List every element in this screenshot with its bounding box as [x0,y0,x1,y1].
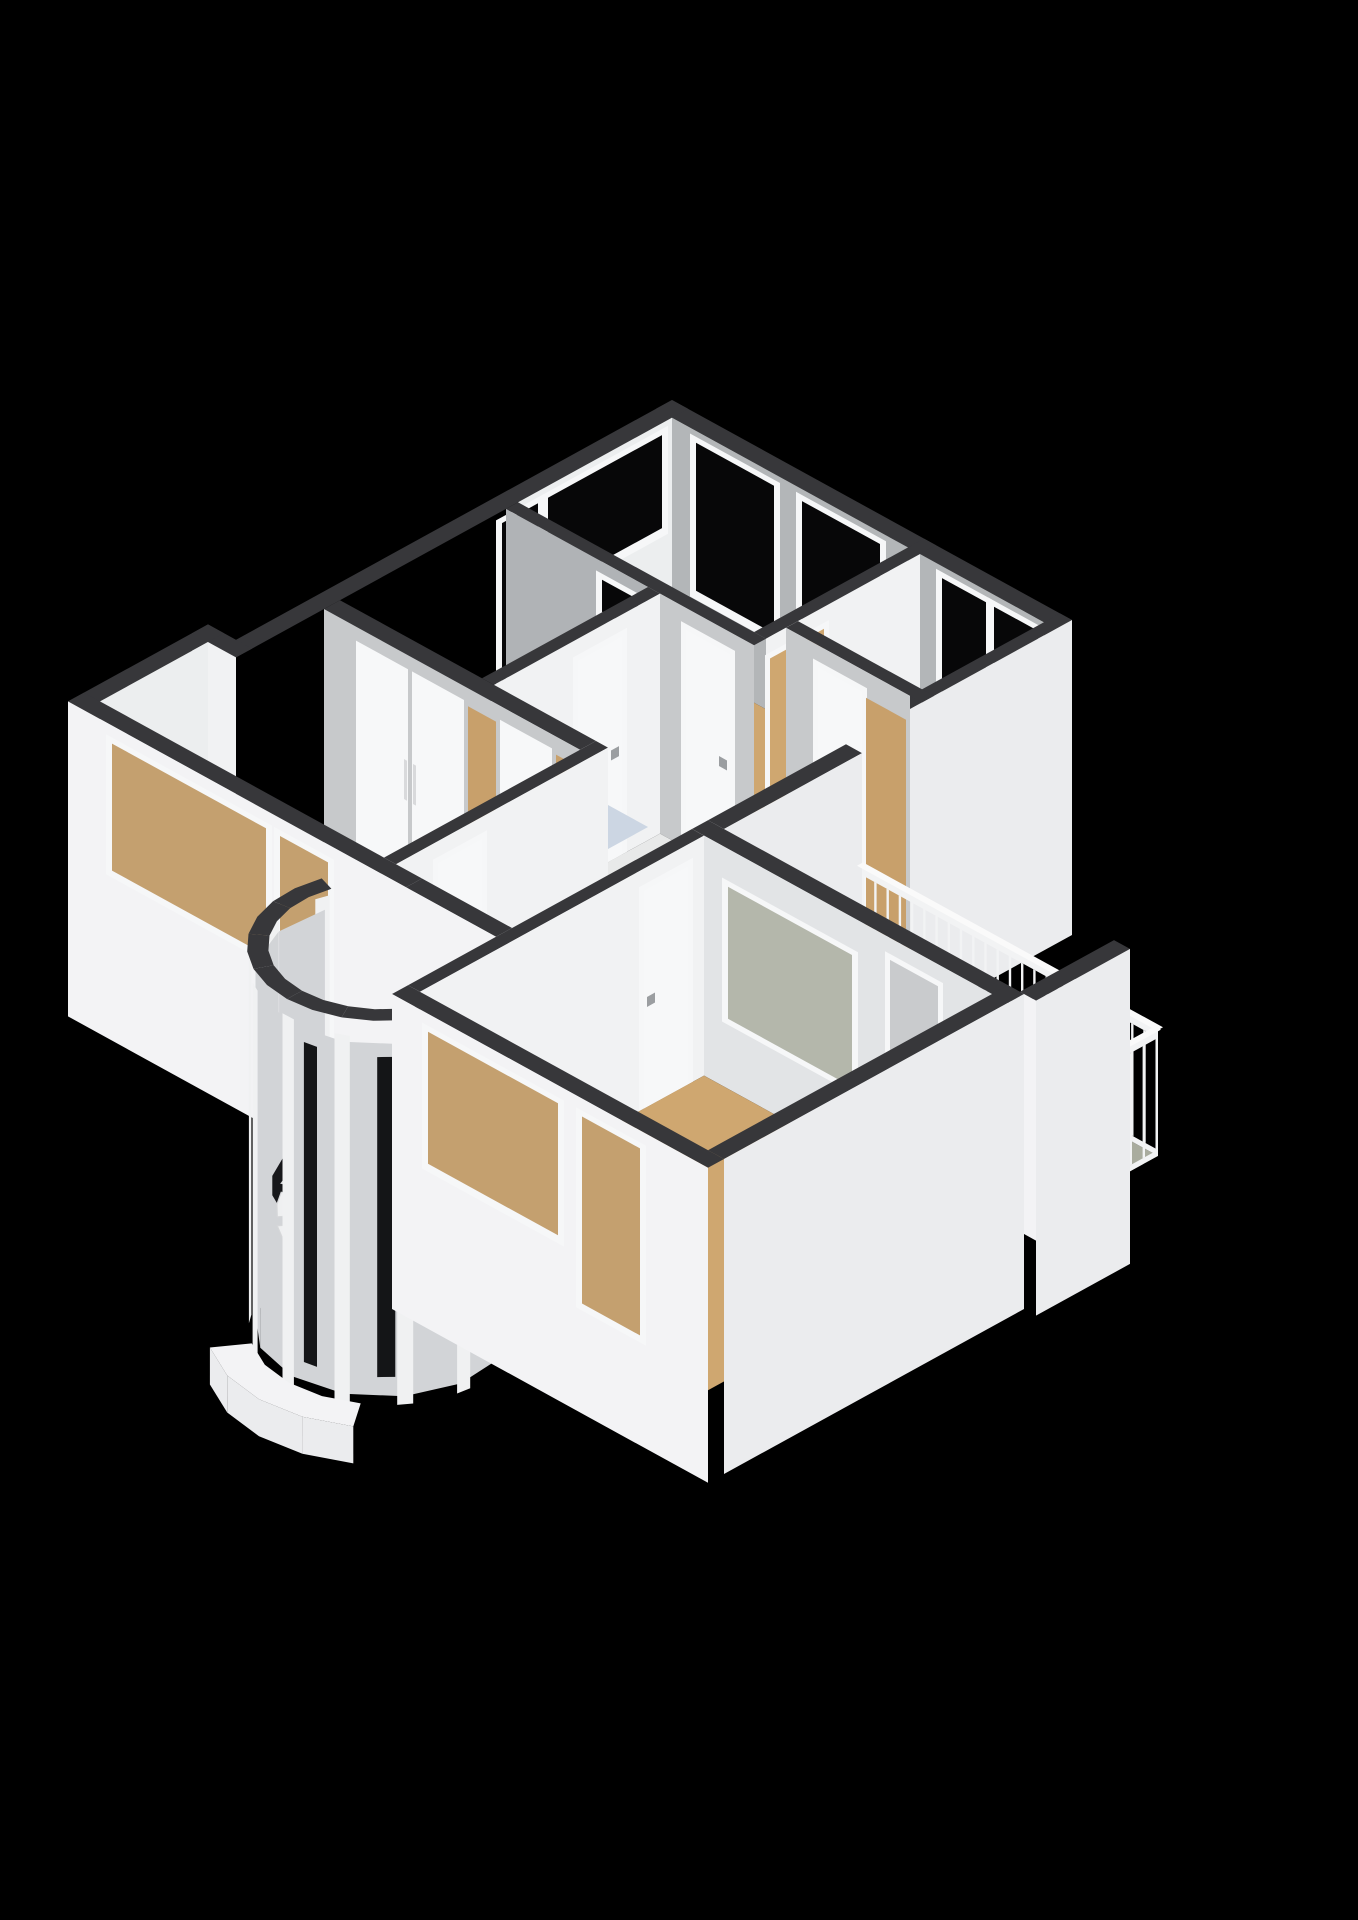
turret-mullion [283,1013,294,1386]
floorplan-stage [0,0,1358,1920]
closet-handle [404,759,407,801]
door-leaf [644,866,688,1108]
window-glass [582,1117,640,1336]
floorplan-3d-render [0,0,1358,1920]
turret-glass-slit [304,1042,317,1367]
balcony-baluster [1156,1038,1158,1151]
closet-handle [413,764,416,806]
balcony-baluster [1143,1045,1145,1158]
turret-mullion [335,1033,350,1403]
turret-mullion [253,982,258,1357]
privacy-wall-face [1036,949,1130,1316]
turret-mullion [249,948,252,1324]
